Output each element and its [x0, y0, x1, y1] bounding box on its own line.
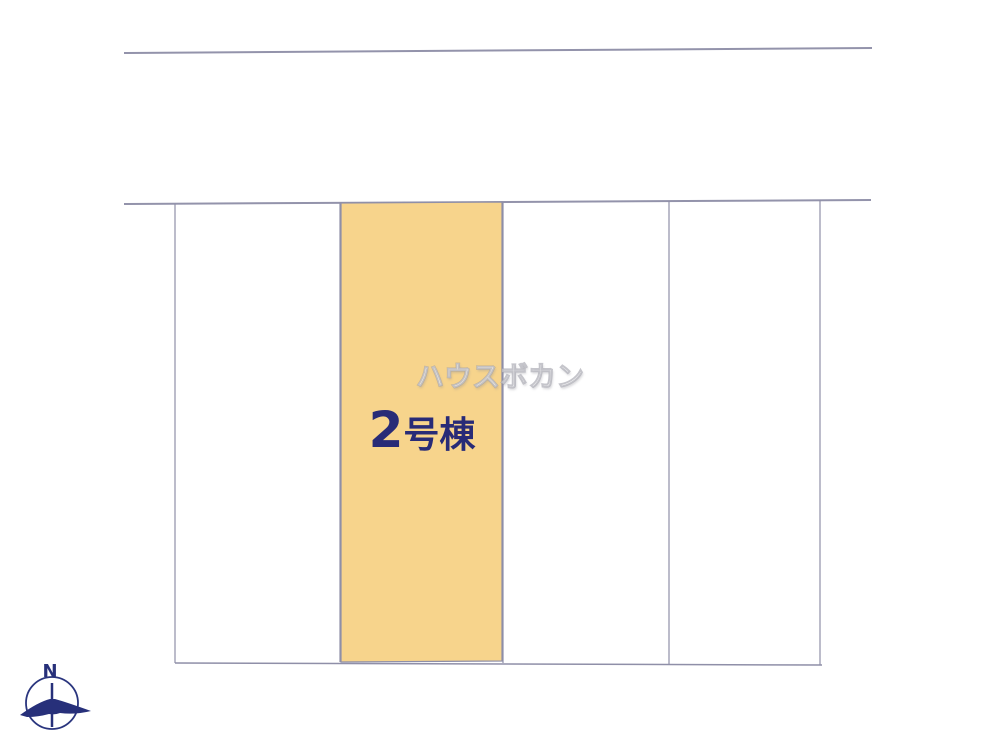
plots-bottom-boundary-line [175, 663, 822, 665]
compass-north-arrow: N [20, 661, 91, 729]
road-edge-upper-line [124, 48, 872, 53]
plot-2-label: 2号棟 [341, 405, 503, 463]
compass-wings-shape [20, 699, 91, 717]
compass-north-label: N [42, 661, 57, 682]
plot-map-drawing: N [0, 0, 1000, 750]
plot-2-label-number: 2 [369, 405, 404, 455]
plot-2-label-suffix: 号棟 [403, 418, 475, 454]
site-plan-image: N ハウスボカン 2号棟 [0, 0, 1000, 750]
